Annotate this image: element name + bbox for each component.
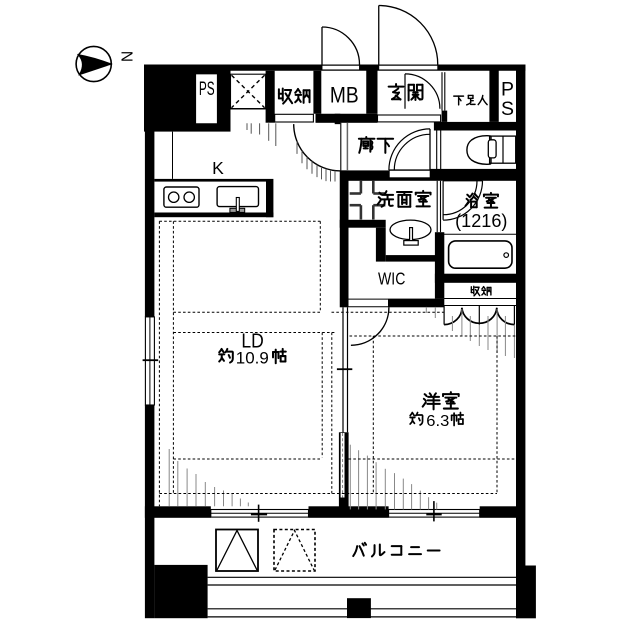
svg-text:N: N <box>117 51 134 62</box>
svg-text:(1216): (1216) <box>455 210 507 231</box>
svg-text:6.3: 6.3 <box>426 413 449 430</box>
svg-text:S: S <box>501 98 514 120</box>
svg-text:MB: MB <box>330 82 359 107</box>
svg-text:P: P <box>501 78 514 100</box>
svg-text:PS: PS <box>199 79 215 100</box>
svg-text:10.9: 10.9 <box>236 349 269 368</box>
svg-text:WIC: WIC <box>378 268 405 288</box>
svg-text:K: K <box>212 158 224 178</box>
